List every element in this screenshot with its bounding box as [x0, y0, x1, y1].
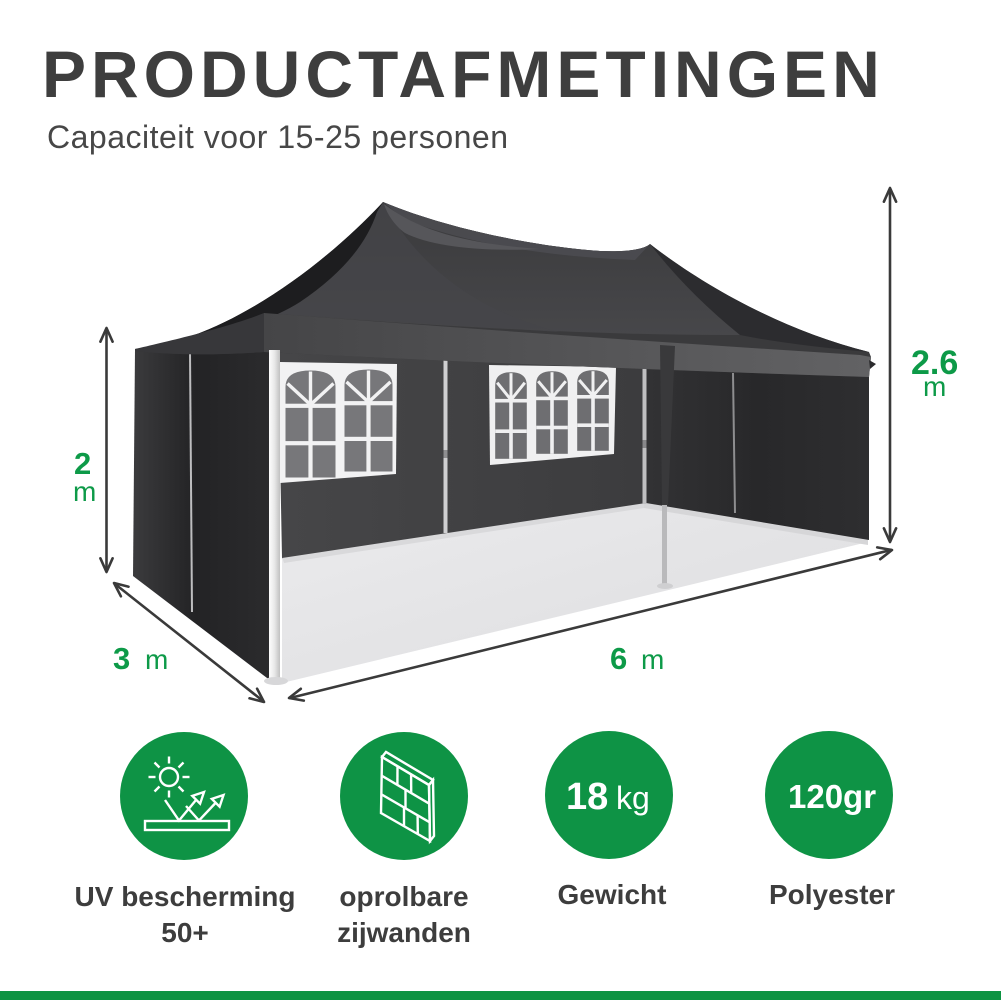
svg-text:m: m	[73, 476, 96, 507]
svg-text:3: 3	[113, 641, 130, 676]
svg-text:m: m	[145, 644, 168, 675]
svg-text:kg: kg	[616, 780, 650, 816]
svg-text:6: 6	[610, 641, 627, 676]
svg-text:18: 18	[566, 776, 608, 818]
svg-text:120gr: 120gr	[788, 778, 876, 815]
svg-text:m: m	[641, 644, 664, 675]
svg-text:m: m	[923, 371, 946, 402]
